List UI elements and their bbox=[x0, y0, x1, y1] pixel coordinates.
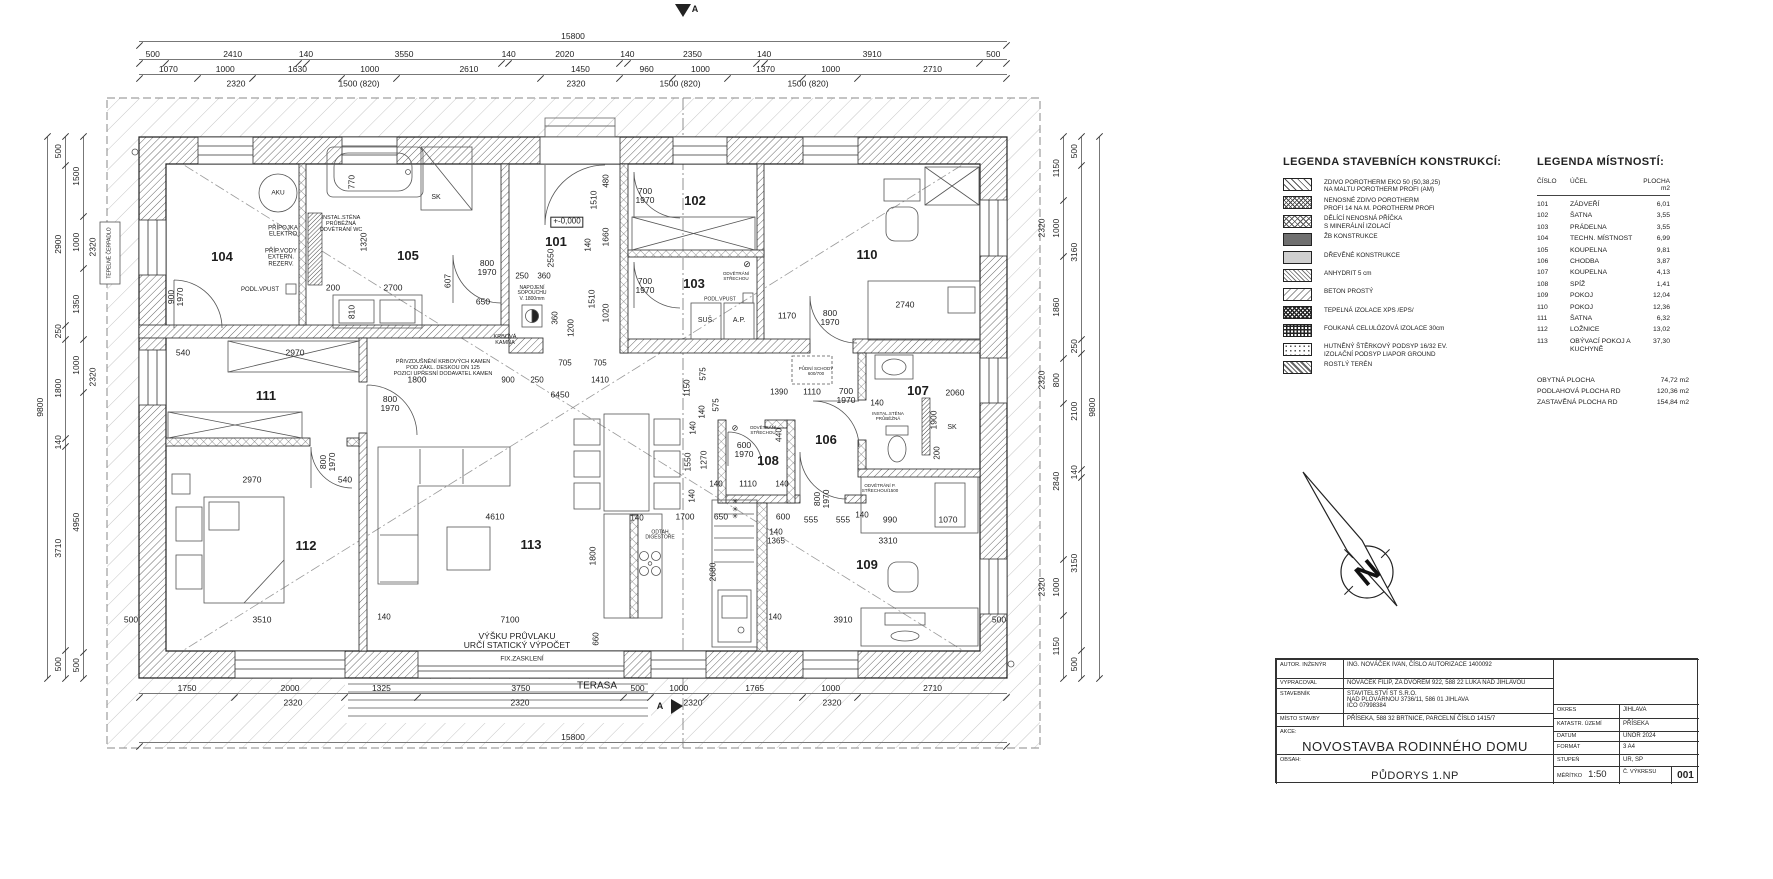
plan-annotation: 2320 bbox=[227, 79, 246, 88]
dim-value: 960 bbox=[620, 65, 673, 75]
katastr-label: KATASTR. ÚZEMÍ bbox=[1553, 718, 1619, 731]
dim-text: 1150 bbox=[1052, 160, 1061, 178]
dim-value: 1630 bbox=[253, 65, 343, 75]
plan-annotation: AKU bbox=[271, 189, 284, 196]
room-purpose-cell: TECHN. MÍSTNOST bbox=[1570, 235, 1640, 243]
dim-text: 3150 bbox=[1070, 554, 1079, 573]
format-value: 3 A4 bbox=[1619, 741, 1699, 754]
room-legend-row: 113OBÝVACÍ POKOJ A KUCHYNĚ37,30 bbox=[1537, 338, 1670, 354]
room-legend-row: 108SPÍŽ1,41 bbox=[1537, 281, 1670, 289]
room-number: 113 bbox=[521, 538, 542, 552]
plan-annotation: PŘÍPOJKA ELEKTRO bbox=[268, 226, 298, 239]
legend-construction-item: ROSTLÝ TERÉN bbox=[1283, 361, 1538, 373]
plan-annotation: 900 1970 bbox=[167, 288, 185, 307]
summary-label: ZASTAVĚNÁ PLOCHA RD bbox=[1537, 399, 1647, 407]
pricka-swatch bbox=[1283, 215, 1312, 228]
dim-value: 1860 bbox=[1050, 256, 1063, 359]
dim-value: 2350 bbox=[628, 50, 757, 60]
dim-text: 3160 bbox=[1070, 242, 1079, 261]
north-arrow: N bbox=[1295, 460, 1425, 630]
plan-annotation: 2320 bbox=[284, 698, 303, 707]
plan-annotation: 250 bbox=[515, 273, 528, 282]
dim-left-overall: 9800 bbox=[34, 137, 48, 678]
room-legend-row: 102ŠATNA3,55 bbox=[1537, 212, 1670, 220]
room-purpose-cell: ŠATNA bbox=[1570, 315, 1640, 323]
title-block: AUTOR. INŽENÝR ING. NOVÁČEK IVAN, ČÍSLO … bbox=[1275, 658, 1698, 783]
room-purpose-cell: KOUPELNA bbox=[1570, 247, 1640, 255]
meritko-label: MĚŘÍTKO bbox=[1557, 773, 1582, 779]
plan-annotation: KRBOVÁ KAMNA bbox=[494, 335, 517, 347]
room-number: 110 bbox=[857, 248, 878, 262]
dim-value: 1450 bbox=[541, 65, 621, 75]
dim-value: 1000 bbox=[70, 216, 83, 269]
plan-annotation: 1390 bbox=[770, 389, 788, 398]
plan-annotation: PŮDNÍ SCHODY 600/700 bbox=[799, 367, 834, 377]
anhydrit-swatch bbox=[1283, 269, 1312, 282]
dim-value: 2840 bbox=[1050, 403, 1063, 560]
plan-annotation: 607 bbox=[443, 274, 452, 288]
dim-value: 2610 bbox=[397, 65, 540, 75]
vykres-label: Č. VÝKRESU bbox=[1619, 766, 1671, 784]
room-legend-row: 101ZÁDVEŘÍ6,01 bbox=[1537, 201, 1670, 209]
plan-annotation: 2320 bbox=[88, 238, 97, 257]
legend-rooms-title: LEGENDA MÍSTNOSTÍ: bbox=[1537, 156, 1670, 168]
room-number-cell: 106 bbox=[1537, 258, 1570, 266]
compass-needle bbox=[1303, 472, 1397, 606]
room-number: 105 bbox=[397, 249, 419, 263]
dim-value: 1370 bbox=[728, 65, 803, 75]
legend-construction-label: ROSTLÝ TERÉN bbox=[1324, 361, 1372, 369]
dim-value: 2710 bbox=[858, 65, 1007, 75]
plan-annotation: 555 bbox=[836, 515, 850, 524]
dim-text: 500 bbox=[1070, 657, 1079, 671]
room-area-cell: 6,32 bbox=[1640, 315, 1670, 323]
plan-annotation: 1700 bbox=[676, 512, 695, 521]
dim-text: 2840 bbox=[1052, 471, 1061, 490]
plan-annotation: ✳ ✳ ✳ bbox=[732, 499, 738, 522]
room-number: 103 bbox=[683, 277, 705, 291]
nenosne-swatch bbox=[1283, 196, 1312, 209]
plan-annotation: 705 bbox=[558, 360, 571, 369]
plan-annotation: TEPELNÉ ČERPADLO bbox=[107, 227, 112, 278]
dim-text: 4950 bbox=[72, 512, 81, 531]
plan-annotation: 810 bbox=[347, 305, 356, 319]
plan-annotation: 990 bbox=[883, 515, 897, 524]
plan-annotation: 140 bbox=[768, 614, 781, 623]
plan-annotation: 1110 bbox=[739, 479, 757, 488]
room-purpose-cell: KOUPELNA bbox=[1570, 269, 1640, 277]
legend-construction-label: ŽB KONSTRUKCE bbox=[1324, 233, 1378, 241]
room-number-cell: 107 bbox=[1537, 269, 1570, 277]
room-number-cell: 109 bbox=[1537, 292, 1570, 300]
plan-annotation: ODTAH DIGESTOŘE bbox=[645, 531, 674, 542]
dim-value: 140 bbox=[299, 50, 307, 60]
dim-value: 1325 bbox=[345, 684, 418, 694]
legend-construction-label: DŘEVĚNÉ KONSTRUKCE bbox=[1324, 251, 1400, 259]
plan-annotation: 1800 bbox=[408, 375, 427, 384]
legend-construction-label: NENOSNÉ ZDIVO POROTHERM PROFI 14 NA M. P… bbox=[1324, 196, 1435, 212]
dim-value: 1000 bbox=[803, 65, 858, 75]
plan-annotation: +-0,000 bbox=[550, 217, 583, 228]
author-value: ING. NOVÁČEK IVAN, ČÍSLO AUTORIZACE 1400… bbox=[1343, 659, 1553, 678]
dim-value: 1000 bbox=[1050, 559, 1063, 614]
beton-swatch bbox=[1283, 288, 1312, 301]
plan-annotation: 1900 bbox=[929, 411, 938, 430]
plan-annotation: 1170 bbox=[778, 311, 796, 320]
datum-value: ÚNOR 2024 bbox=[1619, 731, 1699, 741]
plan-annotation: 140 bbox=[630, 515, 643, 524]
drawing-number: 001 bbox=[1671, 766, 1699, 784]
dim-value: 140 bbox=[502, 50, 510, 60]
plan-annotation: A bbox=[657, 702, 664, 712]
dim-value: 3160 bbox=[1068, 165, 1081, 339]
plan-annotation: 2320 bbox=[823, 698, 842, 707]
room-purpose-cell: LOŽNICE bbox=[1570, 326, 1640, 334]
plan-annotation: 575 bbox=[713, 398, 722, 411]
plan-annotation: INSTAL.STĚNA PRŮBĚŽNÁ bbox=[872, 412, 904, 422]
plan-annotation: 2320 bbox=[88, 368, 97, 387]
plan-annotation: ⊘ bbox=[743, 260, 751, 270]
dim-left-segments: 500290025018001403710500 bbox=[52, 137, 66, 678]
legend-constructions-title: LEGENDA STAVEBNÍCH KONSTRUKCÍ: bbox=[1283, 156, 1538, 168]
plan-annotation: 2320 bbox=[1037, 371, 1046, 390]
plan-annotation: SUŠ. bbox=[698, 317, 714, 325]
plan-annotation: 1500 (820) bbox=[659, 79, 700, 88]
legend-construction-label: ANHYDRIT 5 cm bbox=[1324, 269, 1371, 277]
dim-value: 1000 bbox=[803, 684, 858, 694]
plan-annotation: 1800 bbox=[588, 547, 597, 566]
room-area-cell: 3,55 bbox=[1640, 212, 1670, 220]
dim-left-openings: 15001000135010004950500 bbox=[70, 137, 84, 678]
room-legend-row: 105KOUPELNA9,81 bbox=[1537, 247, 1670, 255]
room-number: 102 bbox=[684, 194, 706, 208]
room-number-cell: 111 bbox=[1537, 315, 1570, 323]
dim-value: 4950 bbox=[70, 392, 83, 652]
plan-annotation: 1070 bbox=[939, 515, 958, 524]
drevo-swatch bbox=[1283, 251, 1312, 264]
dim-text: 500 bbox=[54, 144, 63, 158]
katastr-value: PŘÍSEKA bbox=[1619, 718, 1699, 731]
dim-value: 1350 bbox=[70, 268, 83, 339]
dim-value: 1500 bbox=[70, 137, 83, 216]
project-title: NOVOSTAVBA RODINNÉHO DOMU bbox=[1280, 739, 1550, 754]
dim-top-openings: 1070100016301000261014509601000137010002… bbox=[139, 63, 1007, 75]
dim-value: 2410 bbox=[166, 50, 298, 60]
plan-annotation: 360 bbox=[552, 311, 561, 324]
room-purpose-cell: PRÁDELNA bbox=[1570, 224, 1640, 232]
plan-annotation: 1500 (820) bbox=[787, 79, 828, 88]
plan-annotation: 440 bbox=[774, 428, 783, 442]
plan-annotation: 140 bbox=[585, 238, 594, 251]
plan-annotation: FIX.ZASKLENÍ bbox=[500, 655, 543, 662]
dim-text: 1150 bbox=[1052, 637, 1061, 655]
plan-annotation: 140 1365 bbox=[767, 528, 785, 545]
room-area-cell: 1,41 bbox=[1640, 281, 1670, 289]
room-legend-row: 106CHODBA3,87 bbox=[1537, 258, 1670, 266]
plan-annotation: 480 bbox=[603, 174, 612, 187]
plan-annotation: 1320 bbox=[359, 233, 368, 252]
area-summary: OBYTNÁ PLOCHA74,72 m2PODLAHOVÁ PLOCHA RD… bbox=[1537, 377, 1689, 411]
legend-construction-item: ZDIVO POROTHERM EKO 50 (50,38,25) NA MAL… bbox=[1283, 178, 1538, 190]
plan-annotation: 1660 bbox=[601, 228, 610, 247]
dim-text: 1350 bbox=[72, 294, 81, 313]
legend-construction-item: ANHYDRIT 5 cm bbox=[1283, 269, 1538, 281]
dim-value: 500 bbox=[980, 50, 1007, 60]
room-legend-row: 112LOŽNICE13,02 bbox=[1537, 326, 1670, 334]
dim-text: 3710 bbox=[54, 539, 63, 558]
legend-construction-label: HUTNĚNÝ ŠTĚRKOVÝ PODSYP 16/32 EV. IZOLAČ… bbox=[1324, 343, 1447, 359]
zb-swatch bbox=[1283, 233, 1312, 246]
legend-construction-item: HUTNĚNÝ ŠTĚRKOVÝ PODSYP 16/32 EV. IZOLAČ… bbox=[1283, 343, 1538, 355]
dim-value: 1000 bbox=[342, 65, 397, 75]
plan-annotation: 2740 bbox=[896, 300, 915, 309]
dim-text: 1800 bbox=[54, 379, 63, 398]
room-number-cell: 112 bbox=[1537, 326, 1570, 334]
plan-annotation: 800 1970 bbox=[813, 490, 831, 509]
plan-annotation: 2060 bbox=[946, 388, 965, 397]
plan-annotation: PŘÍP.VODY EXTERN. REZERV. bbox=[265, 248, 297, 267]
dim-right-overall: 9800 bbox=[1086, 137, 1100, 678]
plan-annotation: 250 bbox=[530, 377, 543, 386]
dim-value: 1150 bbox=[1050, 137, 1063, 200]
dim-bottom-openings: 17502000132537505001000176510002710 bbox=[139, 682, 1007, 694]
dim-value: 2020 bbox=[509, 50, 620, 60]
plan-annotation: 140 bbox=[775, 481, 788, 490]
plan-annotation: 800 1970 bbox=[381, 395, 400, 413]
stavebnik-label: STAVEBNÍK bbox=[1276, 688, 1343, 714]
room-area-cell: 3,55 bbox=[1640, 224, 1670, 232]
dim-right-segments: 500316025021001403150500 bbox=[1068, 137, 1082, 678]
plan-annotation: PODL.VPUST bbox=[704, 297, 736, 302]
legend-construction-item: DĚLÍCÍ NENOSNÁ PŘÍČKA S MINERÁLNÍ IZOLAC… bbox=[1283, 215, 1538, 227]
legend-construction-label: ZDIVO POROTHERM EKO 50 (50,38,25) NA MAL… bbox=[1324, 178, 1440, 194]
legend-construction-item: FOUKANÁ CELULÓZOVÁ IZOLACE 30cm bbox=[1283, 324, 1538, 336]
plan-annotation: 1550 bbox=[683, 453, 692, 472]
room-legend-row: 109POKOJ12,04 bbox=[1537, 292, 1670, 300]
dim-value: 1000 bbox=[70, 339, 83, 392]
room-number: 108 bbox=[757, 454, 779, 468]
plan-annotation: 140 bbox=[690, 421, 699, 434]
plan-annotation: 3510 bbox=[253, 615, 272, 624]
author-label: AUTOR. INŽENÝR bbox=[1276, 659, 1343, 678]
empty-cell bbox=[1553, 659, 1699, 704]
dim-bottom-overall: 15800 bbox=[139, 731, 1007, 743]
plan-annotation: 650 bbox=[476, 297, 490, 306]
plan-annotation: 500 bbox=[124, 615, 138, 624]
plan-annotation: ODVĚTRÁNÍ P. STŘECHOU/1500 bbox=[862, 484, 899, 494]
summary-value: 154,84 m2 bbox=[1647, 399, 1689, 407]
room-number-cell: 101 bbox=[1537, 201, 1570, 209]
plan-annotation: 800 1970 bbox=[478, 259, 497, 277]
dim-text: 800 bbox=[1052, 373, 1061, 387]
plan-annotation: A.P. bbox=[733, 317, 745, 325]
dim-value: 500 bbox=[52, 650, 65, 678]
dim-value: 140 bbox=[620, 50, 628, 60]
plan-annotation: 360 bbox=[537, 273, 550, 282]
room-number: 104 bbox=[211, 250, 233, 264]
plan-annotation: 575 bbox=[700, 367, 709, 380]
format-label: FORMÁT bbox=[1553, 741, 1619, 754]
plan-annotation: 540 bbox=[338, 475, 352, 484]
plan-labels: 23201500 (820)23201500 (820)1500 (820)AA… bbox=[0, 0, 1120, 800]
legend-construction-item: NENOSNÉ ZDIVO POROTHERM PROFI 14 NA M. P… bbox=[1283, 196, 1538, 208]
scale-value: 1:50 bbox=[1588, 769, 1607, 780]
plan-annotation: 200 bbox=[326, 283, 340, 292]
dim-value: 500 bbox=[139, 50, 166, 60]
plan-annotation: 7100 bbox=[501, 615, 520, 624]
col-purpose: ÚČEL bbox=[1570, 178, 1640, 193]
dim-value: 1000 bbox=[651, 684, 706, 694]
legend-constructions: LEGENDA STAVEBNÍCH KONSTRUKCÍ: ZDIVO POR… bbox=[1283, 156, 1538, 379]
zdivo-swatch bbox=[1283, 178, 1312, 191]
celuloza-swatch bbox=[1283, 324, 1312, 337]
plan-annotation: 1510 bbox=[587, 290, 596, 309]
room-number-cell: 113 bbox=[1537, 338, 1570, 354]
plan-annotation: 705 bbox=[593, 360, 606, 369]
dim-value: 500 bbox=[52, 137, 65, 165]
dim-value: 1000 bbox=[198, 65, 253, 75]
room-legend-row: 110POKOJ12,36 bbox=[1537, 304, 1670, 312]
room-purpose-cell: ŠATNA bbox=[1570, 212, 1640, 220]
dim-value: 9800 bbox=[1086, 137, 1099, 678]
room-purpose-cell: ZÁDVEŘÍ bbox=[1570, 201, 1640, 209]
plan-annotation: ODVĚTRÁNÍ STŘECHOU bbox=[723, 272, 749, 282]
plan-annotation: 1020 bbox=[601, 304, 610, 323]
legend-construction-item: BETON PROSTÝ bbox=[1283, 288, 1538, 300]
room-purpose-cell: POKOJ bbox=[1570, 304, 1640, 312]
legend-construction-item: DŘEVĚNÉ KONSTRUKCE bbox=[1283, 251, 1538, 263]
obsah-label: OBSAH: bbox=[1280, 757, 1301, 763]
dim-value: 1000 bbox=[1050, 200, 1063, 255]
summary-row: PODLAHOVÁ PLOCHA RD120,36 m2 bbox=[1537, 388, 1689, 396]
room-purpose-cell: POKOJ bbox=[1570, 292, 1640, 300]
stupen-label: STUPEŇ bbox=[1553, 754, 1619, 766]
summary-value: 74,72 m2 bbox=[1647, 377, 1689, 385]
dim-value: 500 bbox=[1068, 650, 1081, 678]
room-area-cell: 6,01 bbox=[1640, 201, 1670, 209]
dim-value: 2710 bbox=[858, 684, 1007, 694]
vypracoval-value: NOVÁČEK FILIP, ZA DVOREM 922, 588 22 LUK… bbox=[1343, 678, 1553, 688]
dim-value: 1800 bbox=[52, 339, 65, 438]
plan-annotation: 650 bbox=[714, 512, 728, 521]
dim-text: 1000 bbox=[1052, 219, 1061, 238]
dim-text: 1000 bbox=[72, 233, 81, 252]
dim-top-overall: 15800 bbox=[139, 30, 1007, 42]
summary-label: PODLAHOVÁ PLOCHA RD bbox=[1537, 388, 1647, 396]
okres-value: JIHLAVA bbox=[1619, 704, 1699, 718]
misto-value: PŘÍSEKA, 588 32 BRTNICE, PARCELNÍ ČÍSLO … bbox=[1343, 713, 1553, 726]
summary-value: 120,36 m2 bbox=[1647, 388, 1689, 396]
plan-annotation: NAPOJENÍ SOPOUCHU V. 1800mm bbox=[518, 286, 547, 302]
dim-value: 1150 bbox=[1050, 615, 1063, 678]
legend-rooms-header: ČÍSLO ÚČEL PLOCHA m2 bbox=[1537, 178, 1670, 196]
plan-annotation: 3910 bbox=[834, 615, 853, 624]
plan-annotation: 200 bbox=[934, 446, 943, 459]
dim-value: 2900 bbox=[52, 165, 65, 325]
plan-annotation: 500 bbox=[992, 615, 1006, 624]
dim-value: 3750 bbox=[418, 684, 624, 694]
room-area-cell: 4,13 bbox=[1640, 269, 1670, 277]
dim-text: 250 bbox=[1070, 339, 1079, 353]
teren-swatch bbox=[1283, 361, 1312, 374]
dim-value: 1750 bbox=[139, 684, 235, 694]
dim-right-openings: 115010001860800284010001150 bbox=[1050, 137, 1064, 678]
sterk-swatch bbox=[1283, 343, 1312, 356]
dim-value: 250 bbox=[1068, 339, 1081, 353]
dim-value: 1000 bbox=[673, 65, 728, 75]
plan-annotation: ⊘ bbox=[732, 425, 739, 434]
summary-row: ZASTAVĚNÁ PLOCHA RD154,84 m2 bbox=[1537, 399, 1689, 407]
plan-annotation: 800 1970 bbox=[319, 453, 337, 472]
plan-annotation: 2320 bbox=[567, 79, 586, 88]
sheet-title: PŮDORYS 1.NP bbox=[1280, 770, 1550, 782]
plan-annotation: 3310 bbox=[879, 536, 898, 545]
room-area-cell: 37,30 bbox=[1640, 338, 1670, 354]
dim-value: 500 bbox=[1068, 137, 1081, 165]
plan-annotation: 555 bbox=[804, 515, 818, 524]
plan-annotation: 2320 bbox=[511, 698, 530, 707]
room-number: 111 bbox=[256, 389, 276, 403]
dim-value: 3150 bbox=[1068, 477, 1081, 651]
plan-annotation: 600 1970 bbox=[735, 441, 754, 459]
stavebnik-value: STAVITELSTVÍ ST S.R.O. NAD PLOVÁRNOU 373… bbox=[1343, 688, 1553, 714]
dim-value: 1765 bbox=[706, 684, 803, 694]
legend-construction-label: FOUKANÁ CELULÓZOVÁ IZOLACE 30cm bbox=[1324, 324, 1444, 332]
plan-annotation: 2320 bbox=[684, 698, 703, 707]
plan-annotation: 1510 bbox=[589, 191, 598, 210]
dim-value: 2000 bbox=[235, 684, 345, 694]
plan-annotation: 700 1970 bbox=[636, 187, 655, 205]
plan-annotation: 2970 bbox=[243, 475, 262, 484]
room-area-cell: 12,04 bbox=[1640, 292, 1670, 300]
summary-label: OBYTNÁ PLOCHA bbox=[1537, 377, 1647, 385]
plan-annotation: INSTAL.STĚNA PRŮBĚŽNÁ ODVĚTRÁNÍ WC bbox=[320, 216, 363, 234]
room-number-cell: 105 bbox=[1537, 247, 1570, 255]
dim-value: 800 bbox=[1050, 358, 1063, 402]
stupen-value: UR, SP bbox=[1619, 754, 1699, 766]
col-area: PLOCHA m2 bbox=[1640, 178, 1670, 193]
xps-swatch bbox=[1283, 306, 1312, 319]
plan-annotation: 540 bbox=[176, 348, 190, 357]
dim-value: 2100 bbox=[1068, 353, 1081, 469]
plan-annotation: 140 bbox=[870, 400, 883, 409]
dim-value: 3710 bbox=[52, 446, 65, 651]
room-legend-row: 107KOUPELNA4,13 bbox=[1537, 269, 1670, 277]
dim-value: 3910 bbox=[765, 50, 980, 60]
room-area-cell: 9,81 bbox=[1640, 247, 1670, 255]
plan-annotation: 2700 bbox=[384, 283, 403, 292]
room-number: 109 bbox=[856, 558, 878, 572]
dim-value: 15800 bbox=[139, 32, 1007, 42]
plan-annotation: 660 bbox=[593, 632, 602, 645]
legend-construction-label: DĚLÍCÍ NENOSNÁ PŘÍČKA S MINERÁLNÍ IZOLAC… bbox=[1324, 215, 1402, 231]
room-number-cell: 102 bbox=[1537, 212, 1570, 220]
dim-text: 1000 bbox=[72, 356, 81, 375]
room-area-cell: 13,02 bbox=[1640, 326, 1670, 334]
room-legend-row: 103PRÁDELNA3,55 bbox=[1537, 224, 1670, 232]
plan-annotation: 2320 bbox=[1037, 578, 1046, 597]
plan-annotation: 2320 bbox=[1037, 219, 1046, 238]
plan-annotation: 1410 bbox=[591, 377, 609, 386]
room-number-cell: 103 bbox=[1537, 224, 1570, 232]
plan-annotation: 140 bbox=[377, 614, 390, 623]
legend-construction-label: BETON PROSTÝ bbox=[1324, 288, 1373, 296]
plan-annotation: 600 bbox=[776, 512, 790, 521]
legend-construction-item: ŽB KONSTRUKCE bbox=[1283, 233, 1538, 245]
room-number-cell: 104 bbox=[1537, 235, 1570, 243]
room-legend-row: 111ŠATNA6,32 bbox=[1537, 315, 1670, 323]
dim-value: 140 bbox=[1068, 469, 1081, 477]
